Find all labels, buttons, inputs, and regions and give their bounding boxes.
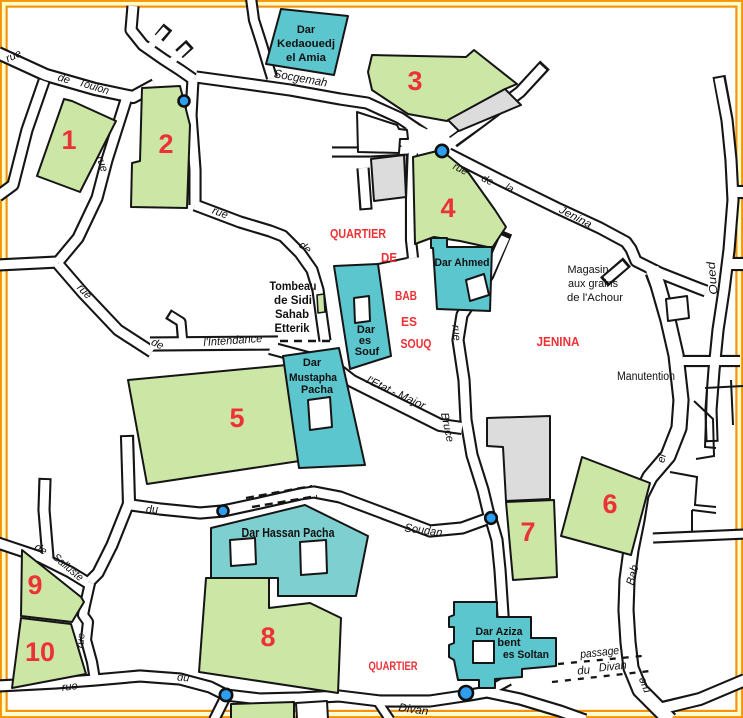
svg-text:es Soltan: es Soltan xyxy=(503,649,549,661)
svg-text:Pacha: Pacha xyxy=(301,384,334,396)
svg-text:de Sidi: de Sidi xyxy=(274,293,312,307)
svg-text:QUARTIER: QUARTIER xyxy=(369,659,418,673)
svg-text:du: du xyxy=(146,504,158,516)
svg-text:3: 3 xyxy=(407,66,422,96)
svg-text:Mustapha: Mustapha xyxy=(289,372,338,384)
svg-text:Manutention: Manutention xyxy=(617,371,675,383)
svg-text:aux grains: aux grains xyxy=(568,278,618,290)
svg-text:4: 4 xyxy=(440,193,455,223)
svg-text:Kedaouedj: Kedaouedj xyxy=(277,38,335,50)
svg-text:8: 8 xyxy=(260,622,275,652)
svg-text:rue: rue xyxy=(449,324,462,341)
svg-text:Souf: Souf xyxy=(355,346,380,358)
svg-text:el Amia: el Amia xyxy=(286,52,327,64)
svg-text:du: du xyxy=(177,672,190,685)
svg-text:ES: ES xyxy=(401,315,417,329)
svg-text:Dar Ahmed: Dar Ahmed xyxy=(435,257,490,269)
svg-text:Dar Hassan Pacha: Dar Hassan Pacha xyxy=(242,526,336,540)
svg-text:Sahab: Sahab xyxy=(275,307,309,321)
svg-text:de l'Achour: de l'Achour xyxy=(567,292,623,304)
svg-text:7: 7 xyxy=(520,517,535,547)
svg-text:Etterik: Etterik xyxy=(275,321,310,335)
svg-text:1: 1 xyxy=(61,125,76,155)
svg-text:SOUQ: SOUQ xyxy=(401,337,432,351)
svg-text:QUARTIER: QUARTIER xyxy=(330,226,387,241)
svg-text:Magasin: Magasin xyxy=(568,264,609,276)
svg-text:Dar: Dar xyxy=(303,357,322,369)
svg-text:10: 10 xyxy=(25,637,55,667)
svg-text:6: 6 xyxy=(602,489,617,519)
svg-text:bent: bent xyxy=(497,637,521,649)
svg-text:Dar: Dar xyxy=(297,24,316,36)
svg-text:JENINA: JENINA xyxy=(537,335,580,349)
svg-text:du: du xyxy=(577,664,592,677)
svg-text:5: 5 xyxy=(229,403,244,433)
svg-text:rue: rue xyxy=(61,680,78,694)
svg-text:rue: rue xyxy=(74,633,87,649)
svg-text:Tombeau: Tombeau xyxy=(270,279,317,293)
svg-text:BAB: BAB xyxy=(395,289,417,303)
svg-text:DE: DE xyxy=(381,251,397,265)
svg-text:9: 9 xyxy=(27,570,42,600)
svg-text:2: 2 xyxy=(158,129,173,159)
